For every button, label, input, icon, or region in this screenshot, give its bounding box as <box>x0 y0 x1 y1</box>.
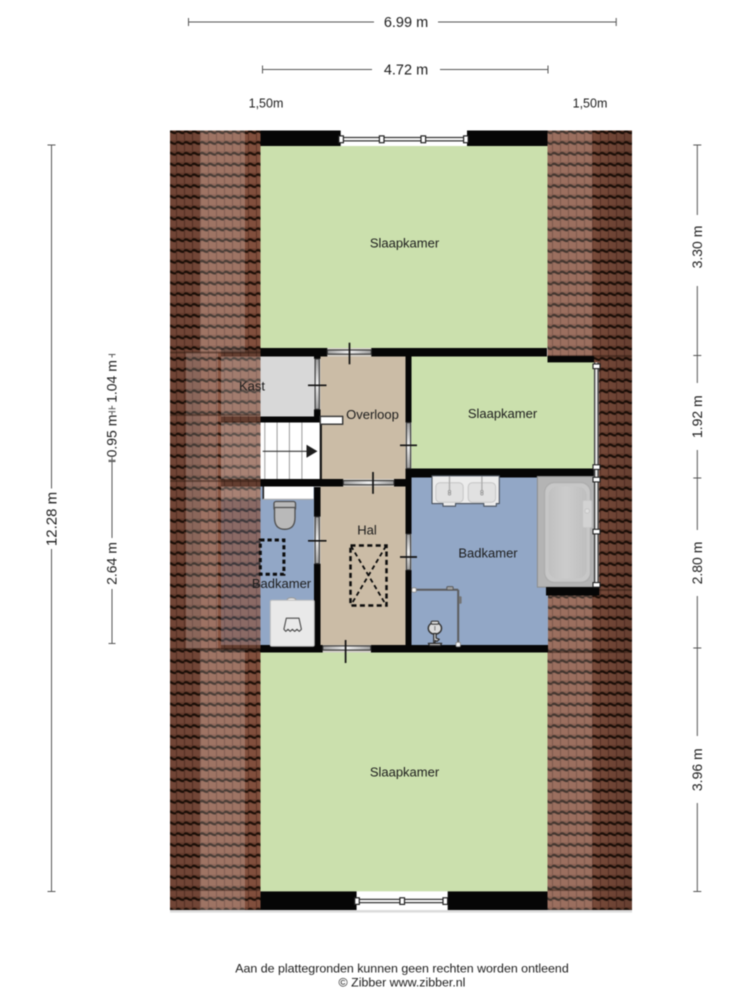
svg-text:Hal: Hal <box>357 523 377 538</box>
svg-text:© Zibber www.zibber.nl: © Zibber www.zibber.nl <box>339 976 466 990</box>
svg-text:1,50m: 1,50m <box>249 97 284 111</box>
svg-text:1.04 m: 1.04 m <box>104 360 120 403</box>
svg-text:3.96 m: 3.96 m <box>689 748 705 791</box>
svg-text:2.80 m: 2.80 m <box>689 542 705 585</box>
svg-text:Slaapkamer: Slaapkamer <box>468 406 538 421</box>
svg-text:Slaapkamer: Slaapkamer <box>370 765 440 780</box>
svg-text:Badkamer: Badkamer <box>458 546 518 561</box>
svg-text:3.30 m: 3.30 m <box>689 226 705 269</box>
svg-text:Kast: Kast <box>239 379 265 394</box>
svg-text:4.72 m: 4.72 m <box>384 63 428 79</box>
svg-text:6.99 m: 6.99 m <box>384 15 428 31</box>
svg-text:1.92 m: 1.92 m <box>689 395 705 438</box>
svg-text:1,50m: 1,50m <box>573 97 608 111</box>
svg-text:2.64 m: 2.64 m <box>104 542 120 585</box>
svg-text:Aan de plattegronden kunnen ge: Aan de plattegronden kunnen geen rechten… <box>235 962 569 976</box>
svg-text:Overloop: Overloop <box>346 407 399 422</box>
svg-text:0.95 m: 0.95 m <box>104 415 120 458</box>
svg-text:12.28 m: 12.28 m <box>44 492 61 546</box>
svg-text:Badkamer: Badkamer <box>252 576 312 591</box>
svg-text:Slaapkamer: Slaapkamer <box>370 236 440 251</box>
